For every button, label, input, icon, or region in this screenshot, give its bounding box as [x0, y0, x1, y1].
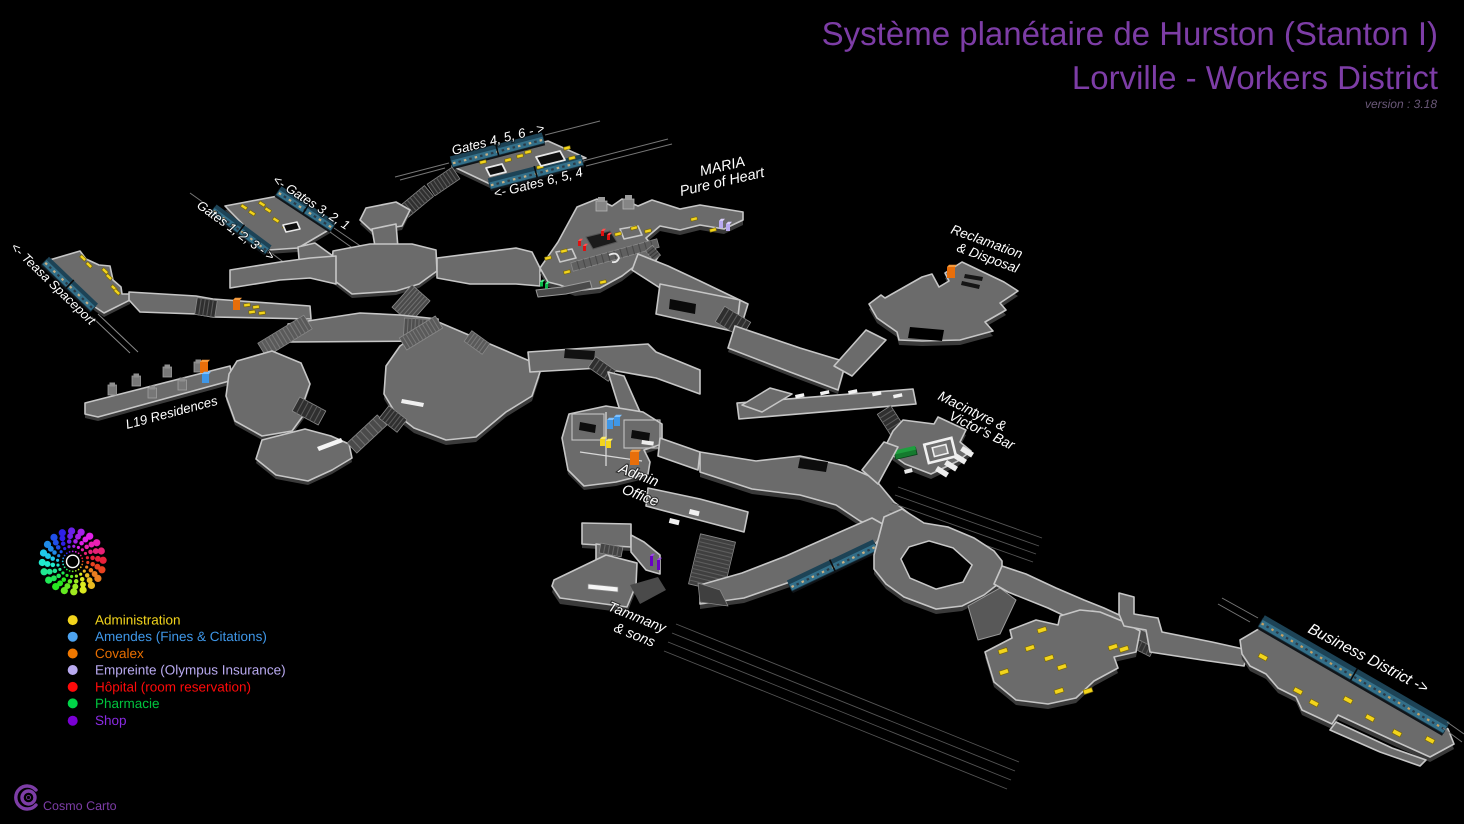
svg-text:Lorville - Workers District: Lorville - Workers District — [1072, 59, 1438, 96]
svg-text:Système planétaire de Hurston: Système planétaire de Hurston (Stanton I… — [822, 15, 1438, 52]
svg-text:Amendes (Fines & Citations): Amendes (Fines & Citations) — [95, 629, 267, 644]
svg-text:Empreinte (Olympus Insurance): Empreinte (Olympus Insurance) — [95, 663, 286, 678]
svg-text:Shop: Shop — [95, 713, 127, 728]
svg-text:Hôpital (room reservation): Hôpital (room reservation) — [95, 679, 251, 694]
svg-text:Administration: Administration — [95, 613, 181, 628]
svg-text:Cosmo Carto: Cosmo Carto — [43, 799, 117, 813]
svg-text:version : 3.18: version : 3.18 — [1365, 97, 1437, 111]
svg-text:Covalex: Covalex — [95, 646, 144, 661]
svg-text:Pharmacie: Pharmacie — [95, 696, 160, 711]
